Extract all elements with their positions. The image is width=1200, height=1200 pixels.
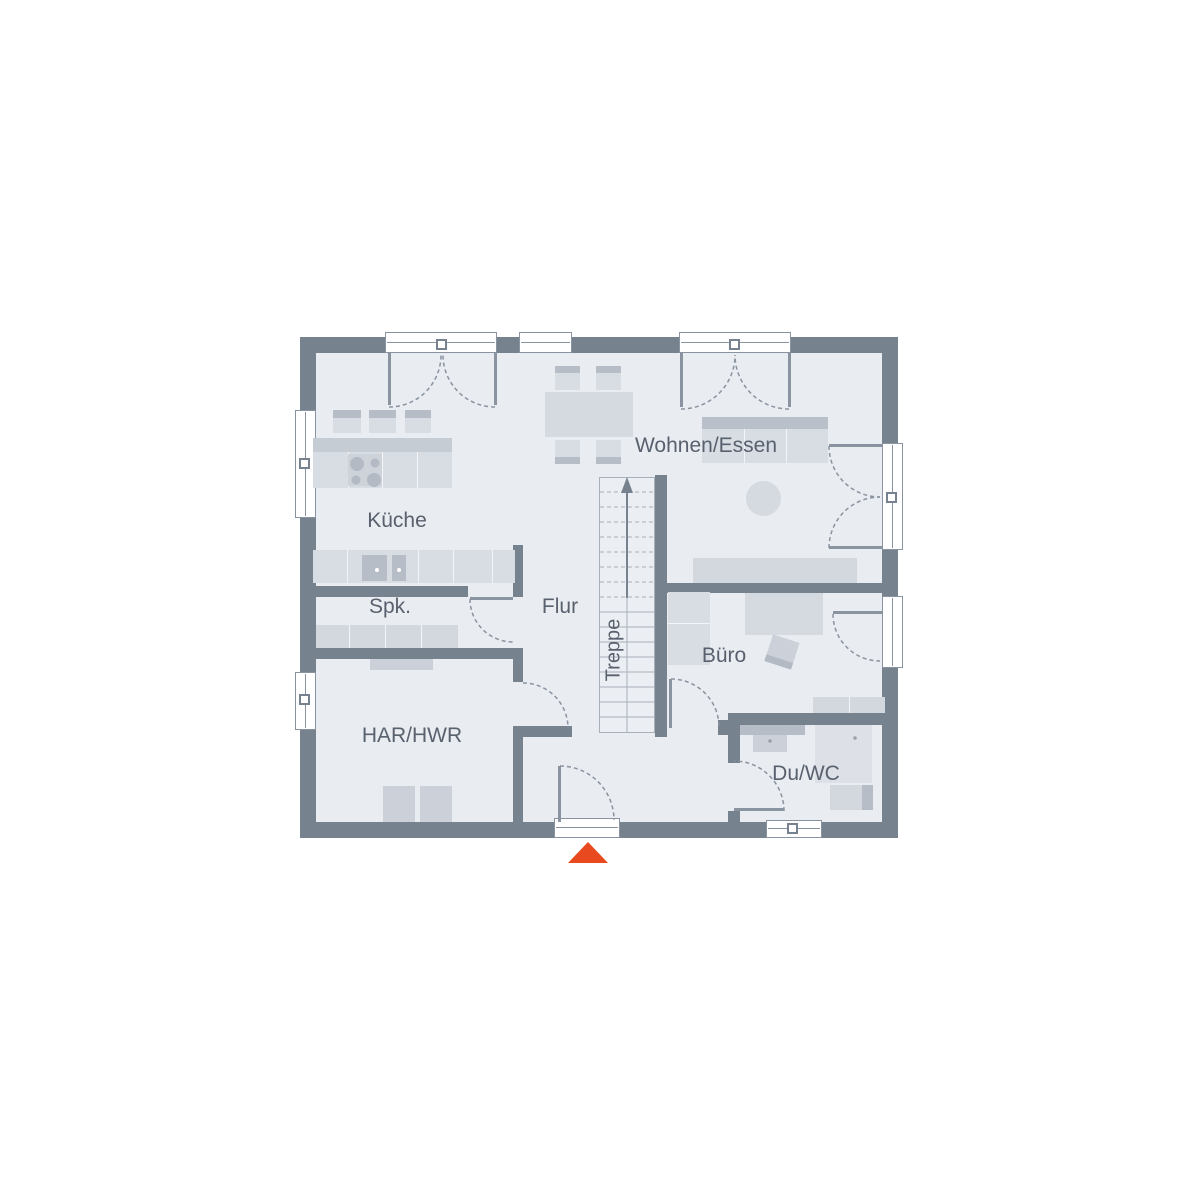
room-label-treppe: Treppe <box>603 619 626 682</box>
wall-duwc-top <box>728 713 882 725</box>
washer <box>383 786 415 822</box>
dining-chair <box>555 366 580 390</box>
dining-table <box>545 392 633 437</box>
window-top-center <box>519 332 572 353</box>
door-handle-icon <box>436 339 447 350</box>
room-label-buero: Büro <box>702 644 746 668</box>
toilet-tank <box>862 785 873 810</box>
kitchen-base-cabinets <box>313 452 452 488</box>
dining-chair <box>555 440 580 464</box>
door-leaf <box>388 353 391 405</box>
dining-chair <box>596 366 621 390</box>
kitchen-sink <box>362 555 387 581</box>
door-leaf <box>680 353 683 407</box>
sideboard <box>693 558 857 583</box>
door-leaf <box>494 353 497 405</box>
door-leaf <box>829 546 882 549</box>
wall-stair-right <box>655 475 667 737</box>
wall-outer-right <box>882 337 898 838</box>
wall-har-right-lower <box>513 726 523 822</box>
coffee-table-round <box>746 481 781 516</box>
har-shelf <box>370 659 433 670</box>
room-label-kueche: Küche <box>367 509 427 533</box>
wall-spk-har <box>316 648 513 659</box>
kitchen-sink-counter <box>313 550 515 583</box>
french-window-buero-right <box>882 596 903 668</box>
entrance-triangle-icon <box>568 842 608 863</box>
door-leaf <box>558 766 561 822</box>
door-leaf <box>788 353 791 407</box>
bath-counter <box>740 725 805 735</box>
entrance-door-sill <box>554 818 620 838</box>
wall-entry-stub <box>523 726 572 737</box>
room-label-wohnen-essen: Wohnen/Essen <box>635 434 777 458</box>
bar-stool <box>333 410 361 433</box>
cooktop <box>348 454 382 486</box>
door-leaf <box>669 679 672 728</box>
wall-har-right-upper <box>513 648 523 682</box>
door-handle-icon <box>729 339 740 350</box>
floorplan-canvas: Küche Spk. Flur HAR/HWR Treppe Wohnen/Es… <box>0 0 1200 1200</box>
room-label-spk: Spk. <box>369 595 411 619</box>
buero-bench <box>813 697 885 713</box>
dryer <box>420 786 452 822</box>
wall-duwc-stub <box>718 720 728 735</box>
desk <box>745 593 823 635</box>
window-handle-icon <box>299 458 310 469</box>
door-handle-icon <box>886 492 897 503</box>
room-label-du-wc: Du/WC <box>772 762 840 786</box>
bar-stool <box>405 410 431 433</box>
toilet <box>830 785 862 810</box>
door-leaf <box>829 444 882 447</box>
room-label-har-hwr: HAR/HWR <box>362 724 462 748</box>
wall-duwc-left-upper <box>728 722 740 763</box>
room-label-flur: Flur <box>542 595 578 619</box>
kitchen-counter-edge <box>313 438 452 452</box>
window-handle-icon <box>787 823 798 834</box>
door-leaf <box>734 808 784 811</box>
kitchen-sink-small <box>392 555 406 581</box>
bath-sink <box>753 735 787 752</box>
wall-duwc-left-lower <box>728 811 740 822</box>
door-leaf <box>470 597 513 600</box>
bar-stool <box>369 410 396 433</box>
pantry-shelf <box>316 625 458 648</box>
window-handle-icon <box>299 694 310 705</box>
dining-chair <box>596 440 621 464</box>
door-leaf <box>833 611 882 614</box>
